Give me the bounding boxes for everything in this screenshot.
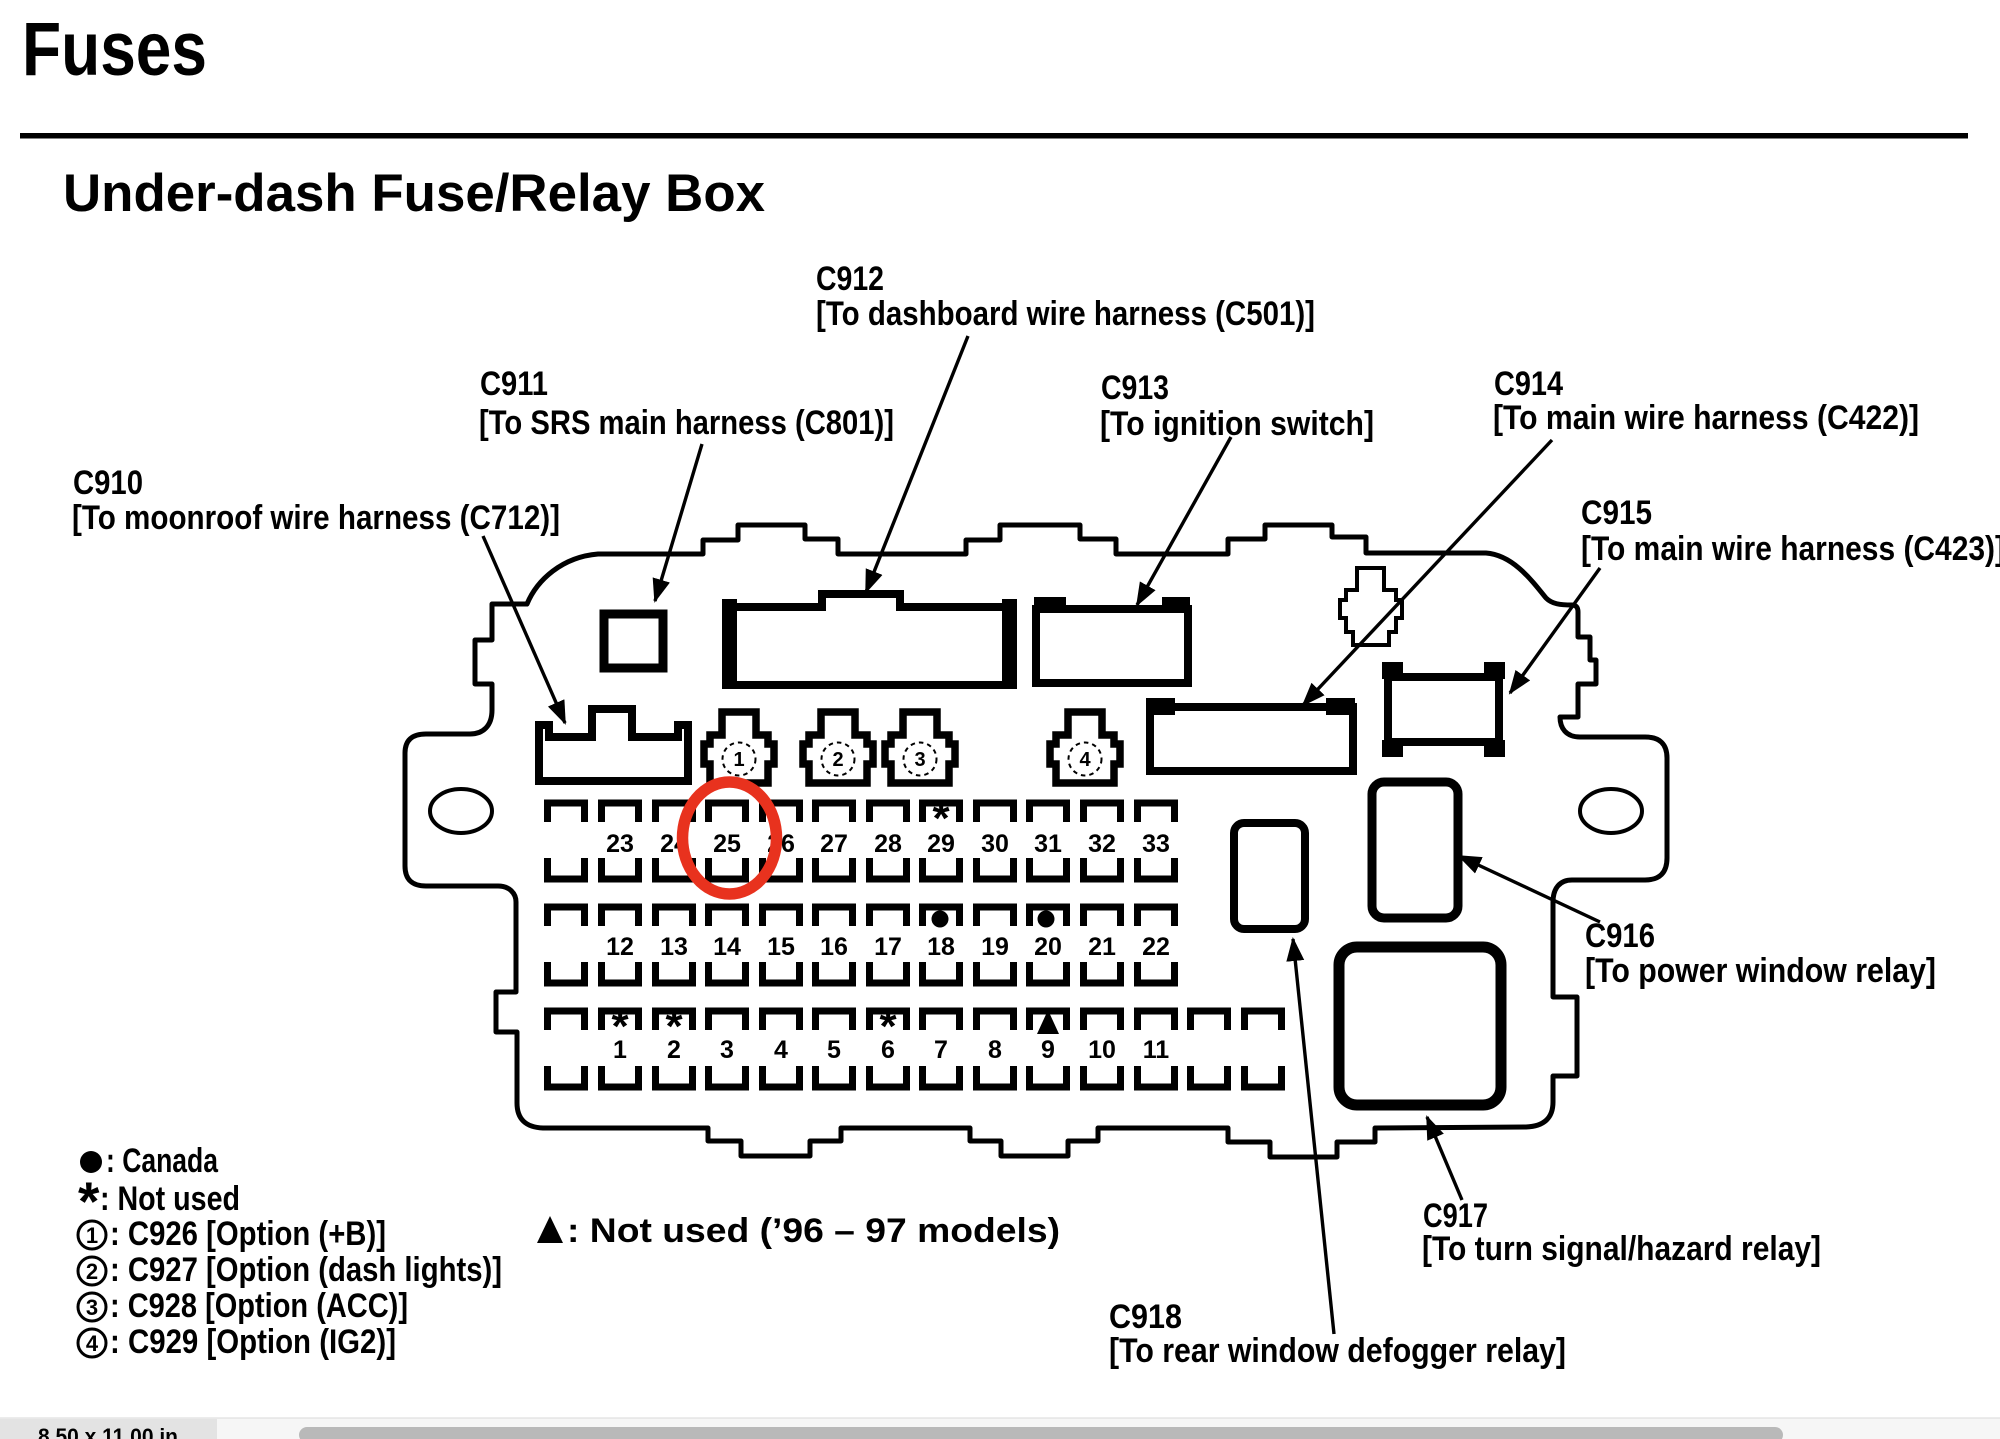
svg-text:: Not used (’96 – 97 models): : Not used (’96 – 97 models) xyxy=(567,1212,1060,1250)
svg-text:: Not used: : Not used xyxy=(100,1180,240,1218)
svg-text:*: * xyxy=(932,794,950,843)
svg-text:[To dashboard wire harness (C5: [To dashboard wire harness (C501)] xyxy=(816,295,1315,333)
svg-text:C910: C910 xyxy=(73,464,143,502)
svg-text:17: 17 xyxy=(874,933,902,961)
svg-text:: C927 [Option (dash lights)]: : C927 [Option (dash lights)] xyxy=(110,1251,502,1289)
svg-text:19: 19 xyxy=(981,933,1009,961)
svg-text:11: 11 xyxy=(1143,1036,1170,1064)
svg-text:32: 32 xyxy=(1088,830,1116,858)
svg-text:: C926 [Option (+B)]: : C926 [Option (+B)] xyxy=(110,1215,386,1253)
svg-text:: C929 [Option (IG2)]: : C929 [Option (IG2)] xyxy=(110,1323,396,1361)
svg-text:Fuses: Fuses xyxy=(22,7,207,92)
svg-text:9: 9 xyxy=(1041,1036,1055,1064)
svg-text:8: 8 xyxy=(988,1036,1002,1064)
svg-text:*: * xyxy=(611,1002,629,1051)
svg-text:33: 33 xyxy=(1142,830,1170,858)
svg-text:3: 3 xyxy=(914,749,925,771)
svg-text:4: 4 xyxy=(86,1331,99,1356)
svg-text:30: 30 xyxy=(981,830,1009,858)
svg-text:10: 10 xyxy=(1088,1036,1116,1064)
svg-text:Under-dash Fuse/Relay Box: Under-dash Fuse/Relay Box xyxy=(63,164,766,223)
svg-text:C914: C914 xyxy=(1494,365,1563,403)
svg-text:[To main wire harness (C422)]: [To main wire harness (C422)] xyxy=(1493,399,1919,437)
svg-text:14: 14 xyxy=(713,933,741,961)
svg-text:C918: C918 xyxy=(1109,1298,1182,1336)
svg-text:5: 5 xyxy=(827,1036,841,1064)
svg-text:[To moonroof wire harness (C71: [To moonroof wire harness (C712)] xyxy=(72,499,560,537)
svg-text:2: 2 xyxy=(86,1259,98,1284)
svg-text:4: 4 xyxy=(1079,749,1091,771)
svg-text:21: 21 xyxy=(1088,933,1116,961)
svg-text:31: 31 xyxy=(1034,830,1062,858)
svg-text:22: 22 xyxy=(1142,933,1170,961)
svg-text:15: 15 xyxy=(767,933,795,961)
svg-text:: Canada: : Canada xyxy=(106,1142,219,1180)
svg-text:[To rear window defogger relay: [To rear window defogger relay] xyxy=(1109,1332,1566,1370)
svg-text:C913: C913 xyxy=(1101,369,1169,407)
svg-text:1: 1 xyxy=(733,749,744,771)
svg-text:16: 16 xyxy=(820,933,848,961)
svg-text:2: 2 xyxy=(832,749,843,771)
svg-text:C915: C915 xyxy=(1581,494,1652,532)
svg-text:C911: C911 xyxy=(480,365,548,403)
svg-text:*: * xyxy=(879,1002,897,1051)
svg-text:25: 25 xyxy=(713,830,741,858)
svg-text:C916: C916 xyxy=(1585,917,1655,955)
svg-text:: C928 [Option (ACC)]: : C928 [Option (ACC)] xyxy=(110,1287,408,1325)
svg-text:27: 27 xyxy=(820,830,848,858)
svg-text:18: 18 xyxy=(927,933,955,961)
svg-text:20: 20 xyxy=(1034,933,1062,961)
svg-text:[To SRS main harness (C801)]: [To SRS main harness (C801)] xyxy=(479,404,894,442)
svg-text:8.50 x 11.00 in: 8.50 x 11.00 in xyxy=(38,1424,178,1439)
svg-text:*: * xyxy=(665,1002,683,1051)
svg-text:1: 1 xyxy=(86,1223,98,1248)
svg-text:13: 13 xyxy=(660,933,688,961)
svg-text:[To ignition switch]: [To ignition switch] xyxy=(1100,405,1374,443)
svg-text:28: 28 xyxy=(874,830,902,858)
svg-text:3: 3 xyxy=(720,1036,734,1064)
svg-text:3: 3 xyxy=(86,1295,98,1320)
svg-text:7: 7 xyxy=(934,1036,948,1064)
svg-text:23: 23 xyxy=(606,830,634,858)
svg-text:4: 4 xyxy=(774,1036,788,1064)
svg-text:12: 12 xyxy=(606,933,634,961)
svg-text:C912: C912 xyxy=(816,260,884,298)
svg-text:[To turn signal/hazard relay]: [To turn signal/hazard relay] xyxy=(1422,1230,1821,1268)
svg-text:[To main wire harness (C423)]: [To main wire harness (C423)] xyxy=(1581,530,2000,568)
svg-text:[To power window relay]: [To power window relay] xyxy=(1585,952,1936,990)
